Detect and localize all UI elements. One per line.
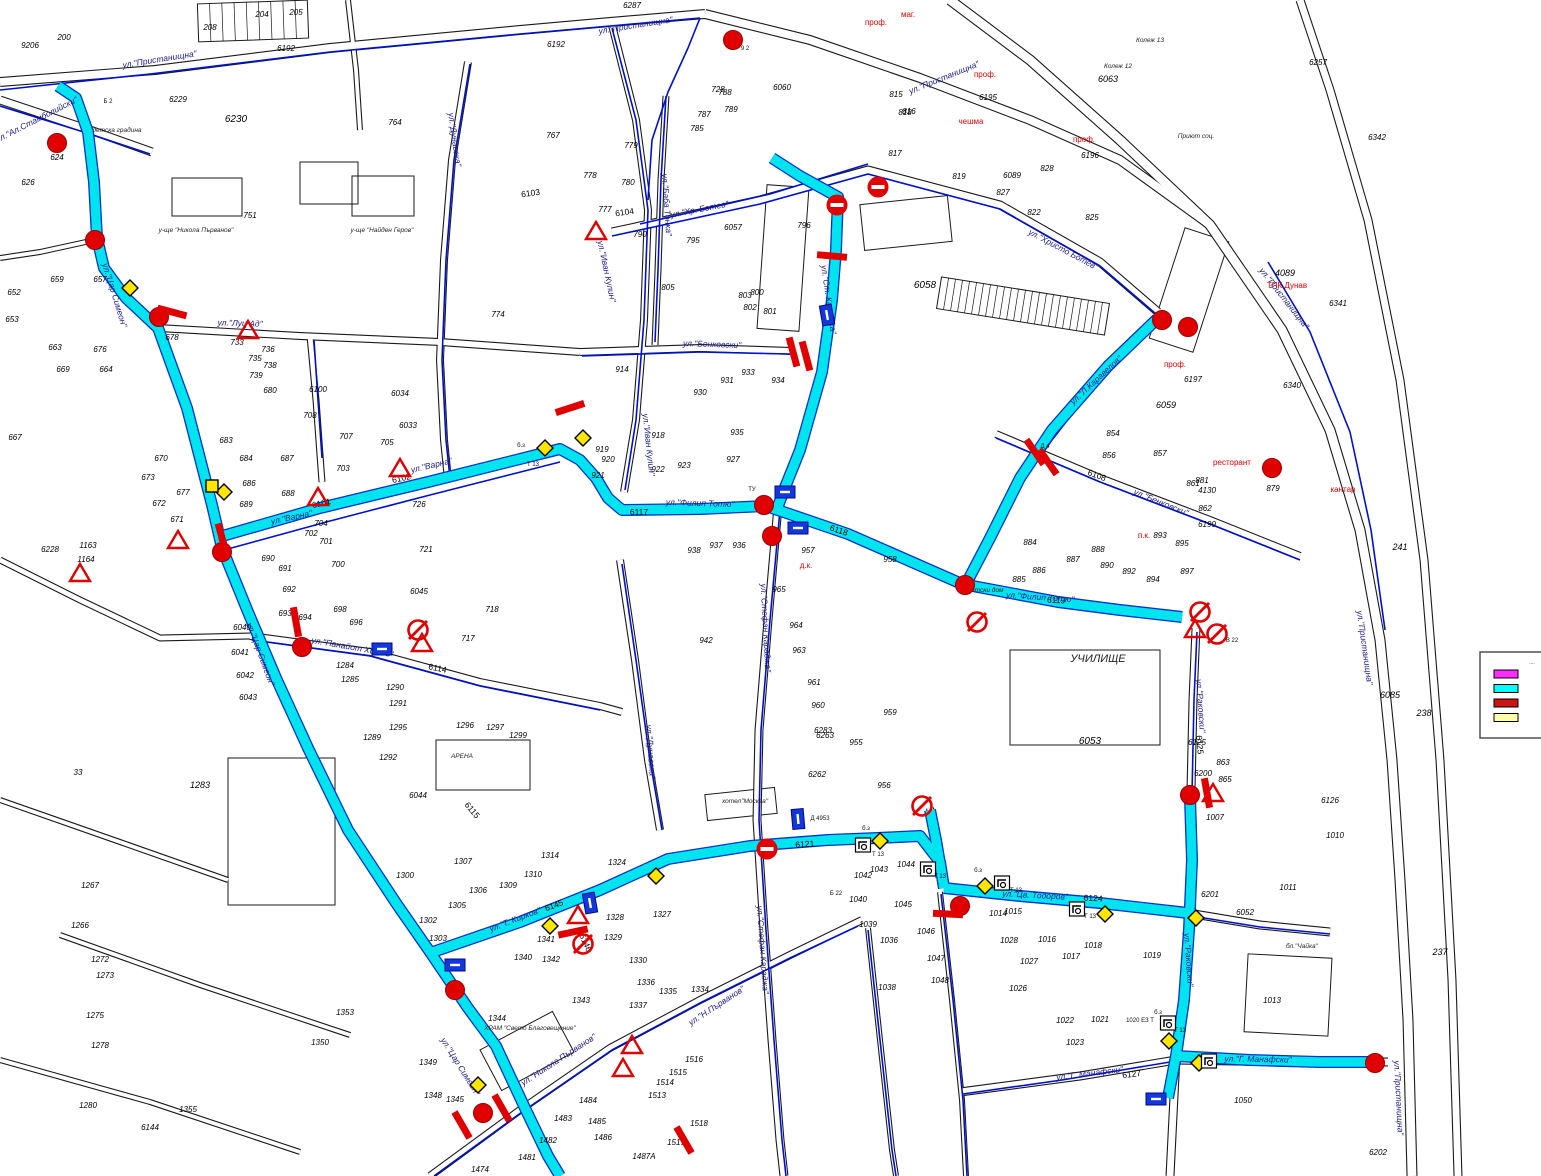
parcel-number: 825 xyxy=(1085,213,1099,222)
parcel-number: 803 xyxy=(738,291,752,300)
hydrant-icon xyxy=(293,638,312,657)
poi-label: чешма xyxy=(959,117,985,126)
reducer-icon xyxy=(788,522,808,534)
fitting-square-icon xyxy=(206,480,218,492)
parcel-number: 935 xyxy=(730,428,744,437)
parcel-number: 920 xyxy=(601,455,615,464)
parcel-number: 888 xyxy=(1091,545,1105,554)
parcel-number: 767 xyxy=(546,131,560,140)
parcel-number: 1292 xyxy=(379,753,397,762)
parcel-number: 1019 xyxy=(1143,951,1161,960)
parcel-number: 778 xyxy=(583,171,597,180)
parcel-number: 919 xyxy=(595,445,609,454)
parcel-number: 659 xyxy=(50,275,64,284)
parcel-number: 956 xyxy=(877,781,891,790)
parcel-number: 6060 xyxy=(773,83,791,92)
parcel-number: 1016 xyxy=(1038,935,1056,944)
parcel-number: 1048 xyxy=(931,976,949,985)
parcel-number: 1011 xyxy=(1279,883,1296,892)
parcel-number: 208 xyxy=(202,23,217,32)
place-name: Приют соц. xyxy=(1178,133,1215,140)
parcel-number: 672 xyxy=(152,499,166,508)
reducer-icon xyxy=(775,486,795,498)
parcel-number: 960 xyxy=(811,701,825,710)
parcel-number: 892 xyxy=(1122,567,1136,576)
parcel-number: 670 xyxy=(154,454,168,463)
parcel-number: 1045 xyxy=(894,900,912,909)
parcel-number: 1302 xyxy=(419,916,437,925)
hydrant-icon xyxy=(48,134,67,153)
parcel-number: 822 xyxy=(1027,208,1041,217)
hydrant-icon xyxy=(1263,459,1282,478)
parcel-number: 4130 xyxy=(1198,486,1216,495)
parcel-number: 884 xyxy=(1023,538,1037,547)
reducer-icon xyxy=(1146,1093,1166,1105)
parcel-number: 805 xyxy=(661,283,675,292)
parcel-number: 1482 xyxy=(539,1136,557,1145)
tech-note: Т 13 xyxy=(1010,888,1023,894)
parcel-number: 4089 xyxy=(1275,268,1295,278)
parcel-number: 1007 xyxy=(1206,813,1224,822)
parcel-number: 1021 xyxy=(1091,1015,1109,1024)
tech-note: б.з xyxy=(1154,1010,1162,1016)
parcel-number: 6192 xyxy=(547,40,565,49)
parcel-number: 1340 xyxy=(514,953,532,962)
hydrant-icon xyxy=(446,981,465,1000)
parcel-number: 1023 xyxy=(1066,1038,1084,1047)
parcel-number: 796 xyxy=(797,221,811,230)
street-name: ул."Бенковски" xyxy=(682,338,743,350)
place-name: детска градина xyxy=(92,126,141,134)
parcel-number: 1043 xyxy=(870,865,888,874)
parcel-number: 704 xyxy=(314,519,328,528)
parcel-number: 1266 xyxy=(71,921,89,930)
parcel-number: 1305 xyxy=(448,901,466,910)
parcel-number: 886 xyxy=(1032,566,1046,575)
parcel-number: 1026 xyxy=(1009,984,1027,993)
tech-note: 9 2 xyxy=(741,46,750,52)
parcel-number: 1513 xyxy=(648,1091,666,1100)
place-name: УЧИЛИЩЕ xyxy=(1069,653,1126,665)
parcel-number: 774 xyxy=(491,310,505,319)
parcel-number: 1040 xyxy=(849,895,867,904)
parcel-number: 1307 xyxy=(454,857,472,866)
parcel-number: 696 xyxy=(349,618,363,627)
parcel-number: 921 xyxy=(591,471,604,480)
parcel-number: 1474 xyxy=(471,1165,489,1174)
parcel-number: 1267 xyxy=(81,881,99,890)
place-name: Колеж 12 xyxy=(1104,63,1132,70)
pipe-id: 6124 xyxy=(1083,893,1103,904)
parcel-number: 958 xyxy=(883,555,897,564)
tech-note: Т 13 xyxy=(872,852,885,858)
parcel-number: 879 xyxy=(1266,484,1280,493)
tech-note: Д 4953 xyxy=(810,816,830,822)
parcel-number: 1272 xyxy=(91,955,109,964)
place-name: хотел"Москва" xyxy=(721,798,769,805)
parcel-number: 1300 xyxy=(396,871,414,880)
poi-label: проф. xyxy=(1073,135,1095,144)
parcel-number: 721 xyxy=(419,545,432,554)
parcel-number: 6202 xyxy=(1369,1148,1387,1157)
place-name: у-ще "Никола Първанов" xyxy=(158,227,234,234)
parcel-number: 6052 xyxy=(1236,908,1254,917)
hydrant-icon xyxy=(1179,318,1198,337)
parcel-number: 801 xyxy=(763,307,776,316)
parcel-number: 1341 xyxy=(537,935,555,944)
parcel-number: 854 xyxy=(1106,429,1120,438)
legend-main-magenta xyxy=(1494,670,1518,678)
parcel-number: 6144 xyxy=(141,1123,159,1132)
parcel-number: 1342 xyxy=(542,955,560,964)
tech-note: Б 22 xyxy=(830,891,843,897)
parcel-number: 1013 xyxy=(1263,996,1281,1005)
place-name: бл."Чайка" xyxy=(1286,942,1319,950)
parcel-number: 626 xyxy=(21,178,35,187)
parcel-number: 689 xyxy=(239,500,253,509)
parcel-number: 688 xyxy=(281,489,295,498)
parcel-number: 893 xyxy=(1153,531,1167,540)
parcel-number: 687 xyxy=(280,454,294,463)
place-name: ХРАМ "Свето Благовещение" xyxy=(483,1025,576,1032)
parcel-number: 1314 xyxy=(541,851,559,860)
parcel-number: 6199 xyxy=(1198,520,1216,529)
map-canvas[interactable]: 9206200204205208622962307516192619262662… xyxy=(0,0,1541,1176)
tech-note: 1020 ЕЗ Т xyxy=(1126,1018,1154,1024)
parcel-number: 703 xyxy=(336,464,350,473)
parcel-number: 6228 xyxy=(41,545,59,554)
parcel-number: 1291 xyxy=(389,699,407,708)
parcel-number: 1010 xyxy=(1326,831,1344,840)
parcel-number: 6230 xyxy=(225,114,248,125)
pipe-id: 6117 xyxy=(630,507,649,517)
parcel-number: 238 xyxy=(1415,708,1431,718)
tech-note: б.з xyxy=(517,443,525,449)
parcel-number: 942 xyxy=(699,636,713,645)
parcel-number: 678 xyxy=(165,333,179,342)
parcel-number: 1044 xyxy=(897,860,915,869)
parcel-number: 6200 xyxy=(1194,769,1212,778)
parcel-number: 819 xyxy=(952,172,966,181)
tech-note: ТУ xyxy=(748,487,756,493)
parcel-number: 1353 xyxy=(336,1008,354,1017)
parcel-number: 6192 xyxy=(277,44,295,53)
parcel-number: 624 xyxy=(50,153,64,162)
parcel-number: 885 xyxy=(1012,575,1026,584)
tech-note: Т 13 xyxy=(527,462,540,468)
hydrant-icon xyxy=(763,527,782,546)
poi-label: ресторант xyxy=(1213,458,1251,467)
parcel-number: 1334 xyxy=(691,985,709,994)
parcel-number: 652 xyxy=(7,288,21,297)
parcel-number: 6059 xyxy=(1156,400,1176,410)
parcel-number: 205 xyxy=(288,8,303,17)
parcel-number: 1514 xyxy=(656,1078,674,1087)
parcel-number: 700 xyxy=(331,560,345,569)
parcel-number: 669 xyxy=(56,365,70,374)
no-entry-bar xyxy=(761,847,774,851)
parcel-number: 663 xyxy=(48,343,62,352)
parcel-number: 708 xyxy=(303,411,317,420)
parcel-number: 930 xyxy=(693,388,707,397)
parcel-number: 1306 xyxy=(469,886,487,895)
parcel-number: 957 xyxy=(801,546,815,555)
tech-note: Б 2 xyxy=(104,99,114,105)
parcel-number: 1350 xyxy=(311,1038,329,1047)
parcel-number: 698 xyxy=(333,605,347,614)
parcel-number: 890 xyxy=(1100,561,1114,570)
parcel-number: 694 xyxy=(298,613,312,622)
parcel-number: 857 xyxy=(1153,449,1167,458)
parcel-number: 914 xyxy=(615,365,629,374)
poi-label: проф. xyxy=(1164,360,1186,369)
parcel-number: 1310 xyxy=(524,870,542,879)
parcel-number: 237 xyxy=(1431,947,1448,957)
parcel-number: 1337 xyxy=(629,1001,647,1010)
parcel-number: 923 xyxy=(677,461,691,470)
parcel-number: 717 xyxy=(461,634,475,643)
parcel-number: 6085 xyxy=(1380,690,1401,700)
parcel-number: 241 xyxy=(1391,542,1407,552)
parcel-number: 894 xyxy=(1146,575,1160,584)
parcel-number: 726 xyxy=(412,500,426,509)
parcel-number: 1349 xyxy=(419,1058,437,1067)
parcel-number: 1163 xyxy=(79,541,97,550)
parcel-number: 1290 xyxy=(386,683,404,692)
parcel-number: 1046 xyxy=(917,927,935,936)
parcel-number: 1028 xyxy=(1000,936,1018,945)
parcel-number: 787 xyxy=(697,110,711,119)
parcel-number: 817 xyxy=(888,149,902,158)
tech-note: б.з xyxy=(862,826,870,832)
parcel-number: 6034 xyxy=(391,389,409,398)
place-name: Колеж 13 xyxy=(1136,37,1164,44)
parcel-number: 1022 xyxy=(1056,1016,1074,1025)
parcel-number: 790 xyxy=(633,230,647,239)
parcel-number: 6340 xyxy=(1283,381,1301,390)
parcel-number: 1328 xyxy=(606,913,624,922)
parcel-number: 736 xyxy=(261,345,275,354)
parcel-number: 676 xyxy=(93,345,107,354)
parcel-number: 6196 xyxy=(1081,151,1099,160)
parcel-number: 738 xyxy=(263,361,277,370)
parcel-number: 1018 xyxy=(1084,941,1102,950)
parcel-number: 777 xyxy=(598,205,612,214)
parcel-number: 6100 xyxy=(309,385,327,394)
parcel-number: 1355 xyxy=(179,1105,197,1114)
parcel-number: 1297 xyxy=(486,723,504,732)
parcel-number: 897 xyxy=(1180,567,1194,576)
hydrant-icon xyxy=(755,496,774,515)
tech-note: В 22 xyxy=(1226,638,1239,644)
parcel-number: 673 xyxy=(141,473,155,482)
parcel-number: 1284 xyxy=(336,661,354,670)
street-name: ул."Г. Манафски" xyxy=(1223,1053,1292,1064)
parcel-number: 802 xyxy=(743,303,757,312)
parcel-number: 1038 xyxy=(878,983,896,992)
parcel-number: 938 xyxy=(687,546,701,555)
poi-label: маг. xyxy=(901,10,915,19)
pipe-id: 6125 xyxy=(1194,735,1206,755)
parcel-number: 1485 xyxy=(588,1117,606,1126)
parcel-number: 718 xyxy=(485,605,499,614)
parcel-number: 1275 xyxy=(86,1011,104,1020)
parcel-number: 959 xyxy=(883,708,897,717)
parcel-number: 671 xyxy=(170,515,183,524)
parcel-number: 702 xyxy=(304,529,318,538)
parcel-number: 1345 xyxy=(446,1095,464,1104)
tech-note: Т 13 xyxy=(1084,914,1097,920)
parcel-number: 728 xyxy=(711,85,725,94)
parcel-number: 680 xyxy=(263,386,277,395)
parcel-number: 827 xyxy=(996,188,1010,197)
hydrant-icon xyxy=(1153,311,1172,330)
poi-label: д.к. xyxy=(800,561,813,570)
parcel-number: 933 xyxy=(741,368,755,377)
parcel-number: 764 xyxy=(388,118,402,127)
street-name: ул."Луц Ад" xyxy=(216,317,263,329)
parcel-number: 1299 xyxy=(509,731,527,740)
parcel-number: 664 xyxy=(99,365,113,374)
parcel-number: 1047 xyxy=(927,954,945,963)
parcel-number: 690 xyxy=(261,554,275,563)
parcel-number: 1278 xyxy=(91,1041,109,1050)
parcel-number: 6195 xyxy=(979,93,997,102)
no-entry-bar xyxy=(872,185,885,189)
poi-label: ТПК Дунав xyxy=(1267,281,1307,290)
legend-main-red xyxy=(1494,699,1518,707)
cadastral-water-map[interactable]: 9206200204205208622962307516192619262662… xyxy=(0,0,1541,1176)
poi-label: п.к. xyxy=(1138,531,1150,540)
parcel-number: 865 xyxy=(1218,775,1232,784)
poi-label: кантар xyxy=(1330,485,1356,494)
parcel-number: 965 xyxy=(772,585,786,594)
parcel-number: 1050 xyxy=(1234,1096,1252,1105)
parcel-number: 785 xyxy=(690,124,704,133)
reducer-icon xyxy=(445,959,465,971)
hydrant-icon xyxy=(1181,786,1200,805)
parcel-number: 795 xyxy=(686,236,700,245)
parcel-number: 934 xyxy=(771,376,785,385)
parcel-number: 1027 xyxy=(1020,957,1038,966)
parcel-number: 1343 xyxy=(572,996,590,1005)
parcel-number: 6058 xyxy=(914,280,937,291)
hydrant-icon xyxy=(474,1104,493,1123)
parcel-number: 6057 xyxy=(724,223,742,232)
parcel-number: 1348 xyxy=(424,1091,442,1100)
place-name: АРЕНА xyxy=(450,753,473,760)
parcel-number: 6044 xyxy=(409,791,427,800)
parcel-number: 1017 xyxy=(1062,952,1080,961)
no-entry-bar xyxy=(831,203,844,207)
parcel-number: 1336 xyxy=(637,978,655,987)
parcel-number: 779 xyxy=(624,141,638,150)
hydrant-icon xyxy=(724,31,743,50)
parcel-number: 862 xyxy=(1198,504,1212,513)
legend-header: .... xyxy=(1529,660,1535,666)
parcel-number: 895 xyxy=(1175,539,1189,548)
parcel-number: 6197 xyxy=(1184,375,1202,384)
parcel-number: 931 xyxy=(720,376,733,385)
parcel-number: 1283 xyxy=(190,780,210,790)
parcel-number: 1515 xyxy=(669,1068,687,1077)
parcel-number: 683 xyxy=(219,436,233,445)
tech-note: б.з xyxy=(974,868,982,874)
parcel-number: 6063 xyxy=(1098,74,1118,84)
parcel-number: 701 xyxy=(319,537,332,546)
parcel-number: 6342 xyxy=(1368,133,1386,142)
parcel-number: 1273 xyxy=(96,971,114,980)
place-name: у-ще "Найден Геров" xyxy=(350,226,415,234)
parcel-number: 816 xyxy=(902,107,916,116)
parcel-number: 204 xyxy=(254,10,269,19)
parcel-number: 692 xyxy=(282,585,296,594)
parcel-number: 1327 xyxy=(653,910,671,919)
parcel-number: 733 xyxy=(230,338,244,347)
poi-label: проф. xyxy=(865,18,887,27)
reducer-icon xyxy=(372,643,392,655)
parcel-number: 936 xyxy=(732,541,746,550)
parcel-number: 6262 xyxy=(808,770,826,779)
parcel-number: 887 xyxy=(1066,555,1080,564)
parcel-number: 684 xyxy=(239,454,253,463)
parcel-number: 6283 xyxy=(814,726,832,735)
parcel-number: 963 xyxy=(792,646,806,655)
legend-main-cyan xyxy=(1494,685,1518,693)
poi-label: проф. xyxy=(974,70,996,79)
parcel-number: 1483 xyxy=(554,1114,572,1123)
parcel-number: 6126 xyxy=(1321,796,1339,805)
parcel-number: 1330 xyxy=(629,956,647,965)
parcel-number: 6089 xyxy=(1003,171,1021,180)
parcel-number: 1289 xyxy=(363,733,381,742)
parcel-number: 1518 xyxy=(690,1119,708,1128)
parcel-number: 1516 xyxy=(685,1055,703,1064)
hydrant-icon xyxy=(86,231,105,250)
parcel-number: 1344 xyxy=(488,1014,506,1023)
parcel-number: 828 xyxy=(1040,164,1054,173)
parcel-number: 6053 xyxy=(1079,736,1102,747)
parcel-number: 6287 xyxy=(623,1,641,10)
parcel-number: 6257 xyxy=(1309,58,1327,67)
parcel-number: 33 xyxy=(74,768,83,777)
parcel-number: 927 xyxy=(726,455,740,464)
parcel-number: 815 xyxy=(889,90,903,99)
parcel-number: 1039 xyxy=(859,920,877,929)
parcel-number: 739 xyxy=(249,371,263,380)
parcel-number: 693 xyxy=(278,609,292,618)
parcel-number: 1481 xyxy=(518,1153,536,1162)
parcel-number: 200 xyxy=(56,33,71,42)
parcel-number: 6043 xyxy=(239,693,257,702)
parcel-number: 1303 xyxy=(429,934,447,943)
parcel-number: 863 xyxy=(1216,758,1230,767)
parcel-number: 780 xyxy=(621,178,635,187)
parcel-number: 653 xyxy=(5,315,19,324)
parcel-number: 6229 xyxy=(169,95,187,104)
parcel-number: 1015 xyxy=(1004,907,1022,916)
parcel-number: 1280 xyxy=(79,1101,97,1110)
parcel-number: 751 xyxy=(243,211,256,220)
parcel-number: 789 xyxy=(724,105,738,114)
parcel-number: 686 xyxy=(242,479,256,488)
parcel-number: 6042 xyxy=(236,671,254,680)
parcel-number: 6341 xyxy=(1329,299,1347,308)
pipe-id: 6121 xyxy=(795,838,815,849)
parcel-number: 955 xyxy=(849,738,863,747)
parcel-number: 937 xyxy=(709,541,723,550)
parcel-number: 1296 xyxy=(456,721,474,730)
